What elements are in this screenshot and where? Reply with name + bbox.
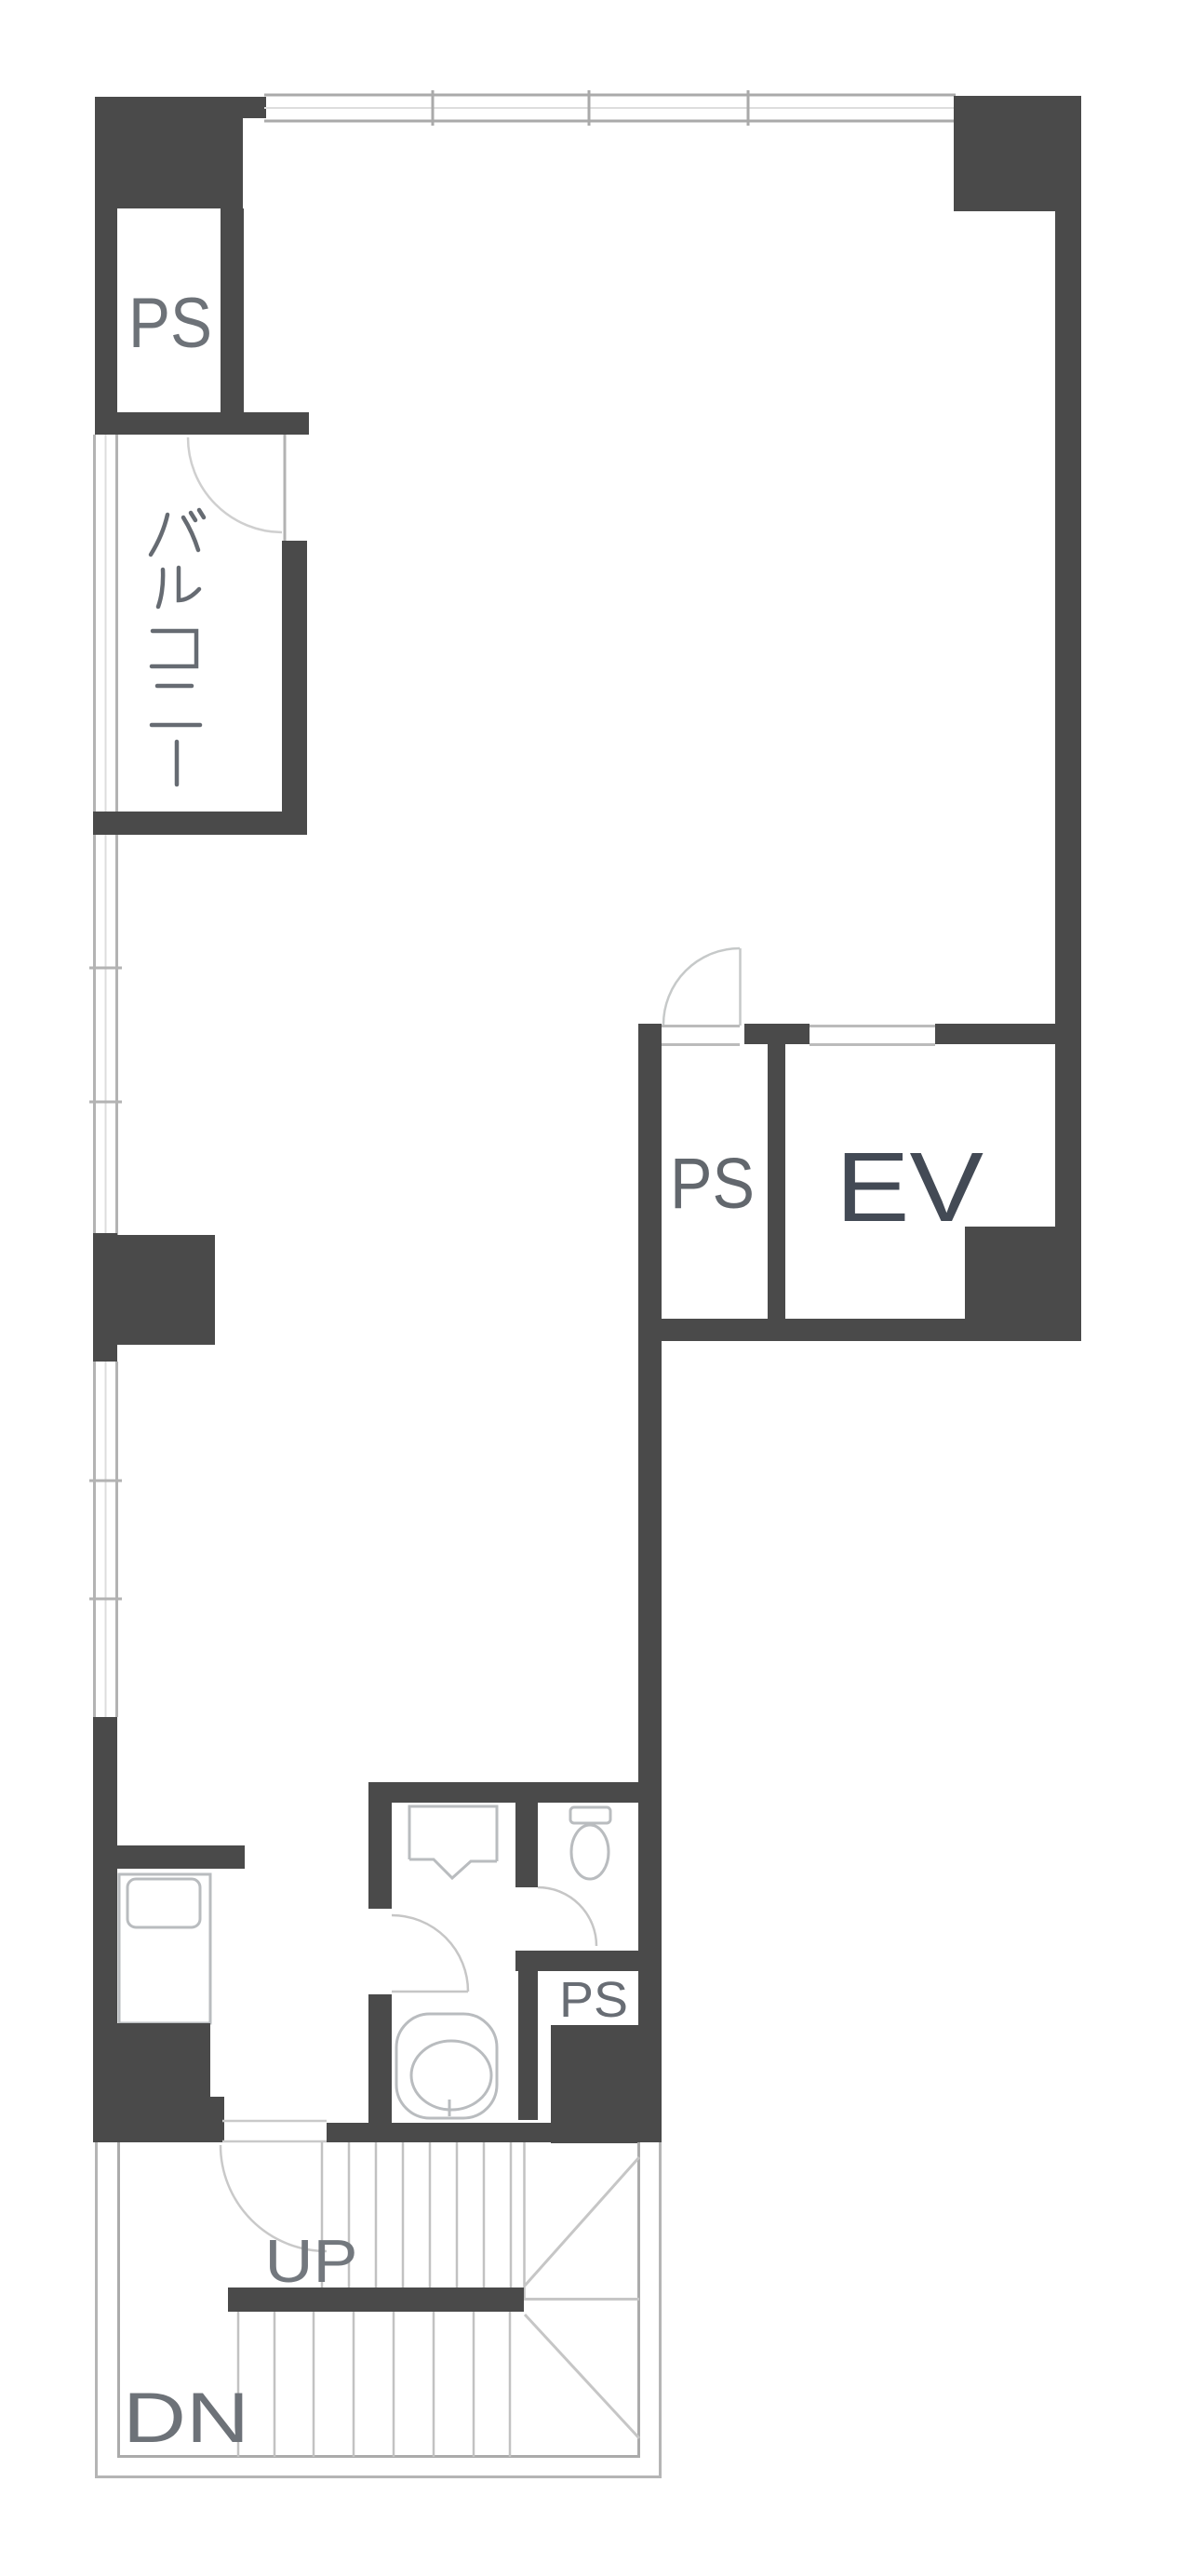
svg-text:DN: DN — [123, 2379, 249, 2458]
svg-text:PS: PS — [670, 1144, 755, 1224]
svg-text:EV: EV — [836, 1133, 984, 1242]
svg-text:UP: UP — [265, 2227, 358, 2295]
svg-text:PS: PS — [128, 284, 212, 363]
svg-text:PS: PS — [559, 1972, 628, 2028]
